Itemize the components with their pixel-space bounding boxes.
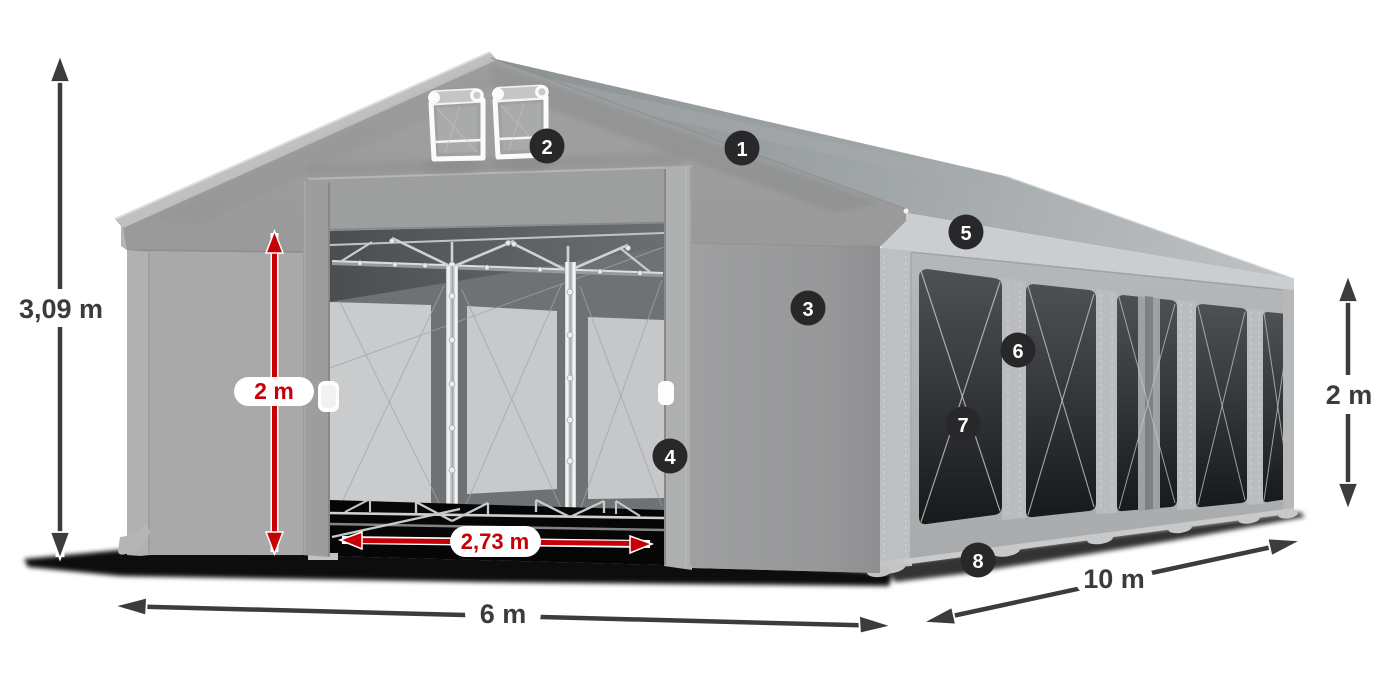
svg-text:4: 4: [664, 447, 676, 469]
svg-text:2 m: 2 m: [254, 378, 294, 404]
svg-text:5: 5: [960, 223, 971, 245]
svg-text:2,73 m: 2,73 m: [461, 529, 530, 554]
svg-text:3,09 m: 3,09 m: [19, 294, 103, 324]
svg-text:8: 8: [972, 551, 983, 573]
svg-text:3: 3: [802, 299, 813, 321]
svg-text:6: 6: [1012, 341, 1023, 363]
svg-text:10 m: 10 m: [1083, 564, 1145, 594]
svg-text:2: 2: [541, 137, 552, 159]
svg-text:7: 7: [957, 415, 968, 437]
svg-text:1: 1: [736, 139, 747, 161]
svg-text:6 m: 6 m: [480, 599, 527, 629]
svg-text:2 m: 2 m: [1326, 380, 1373, 410]
